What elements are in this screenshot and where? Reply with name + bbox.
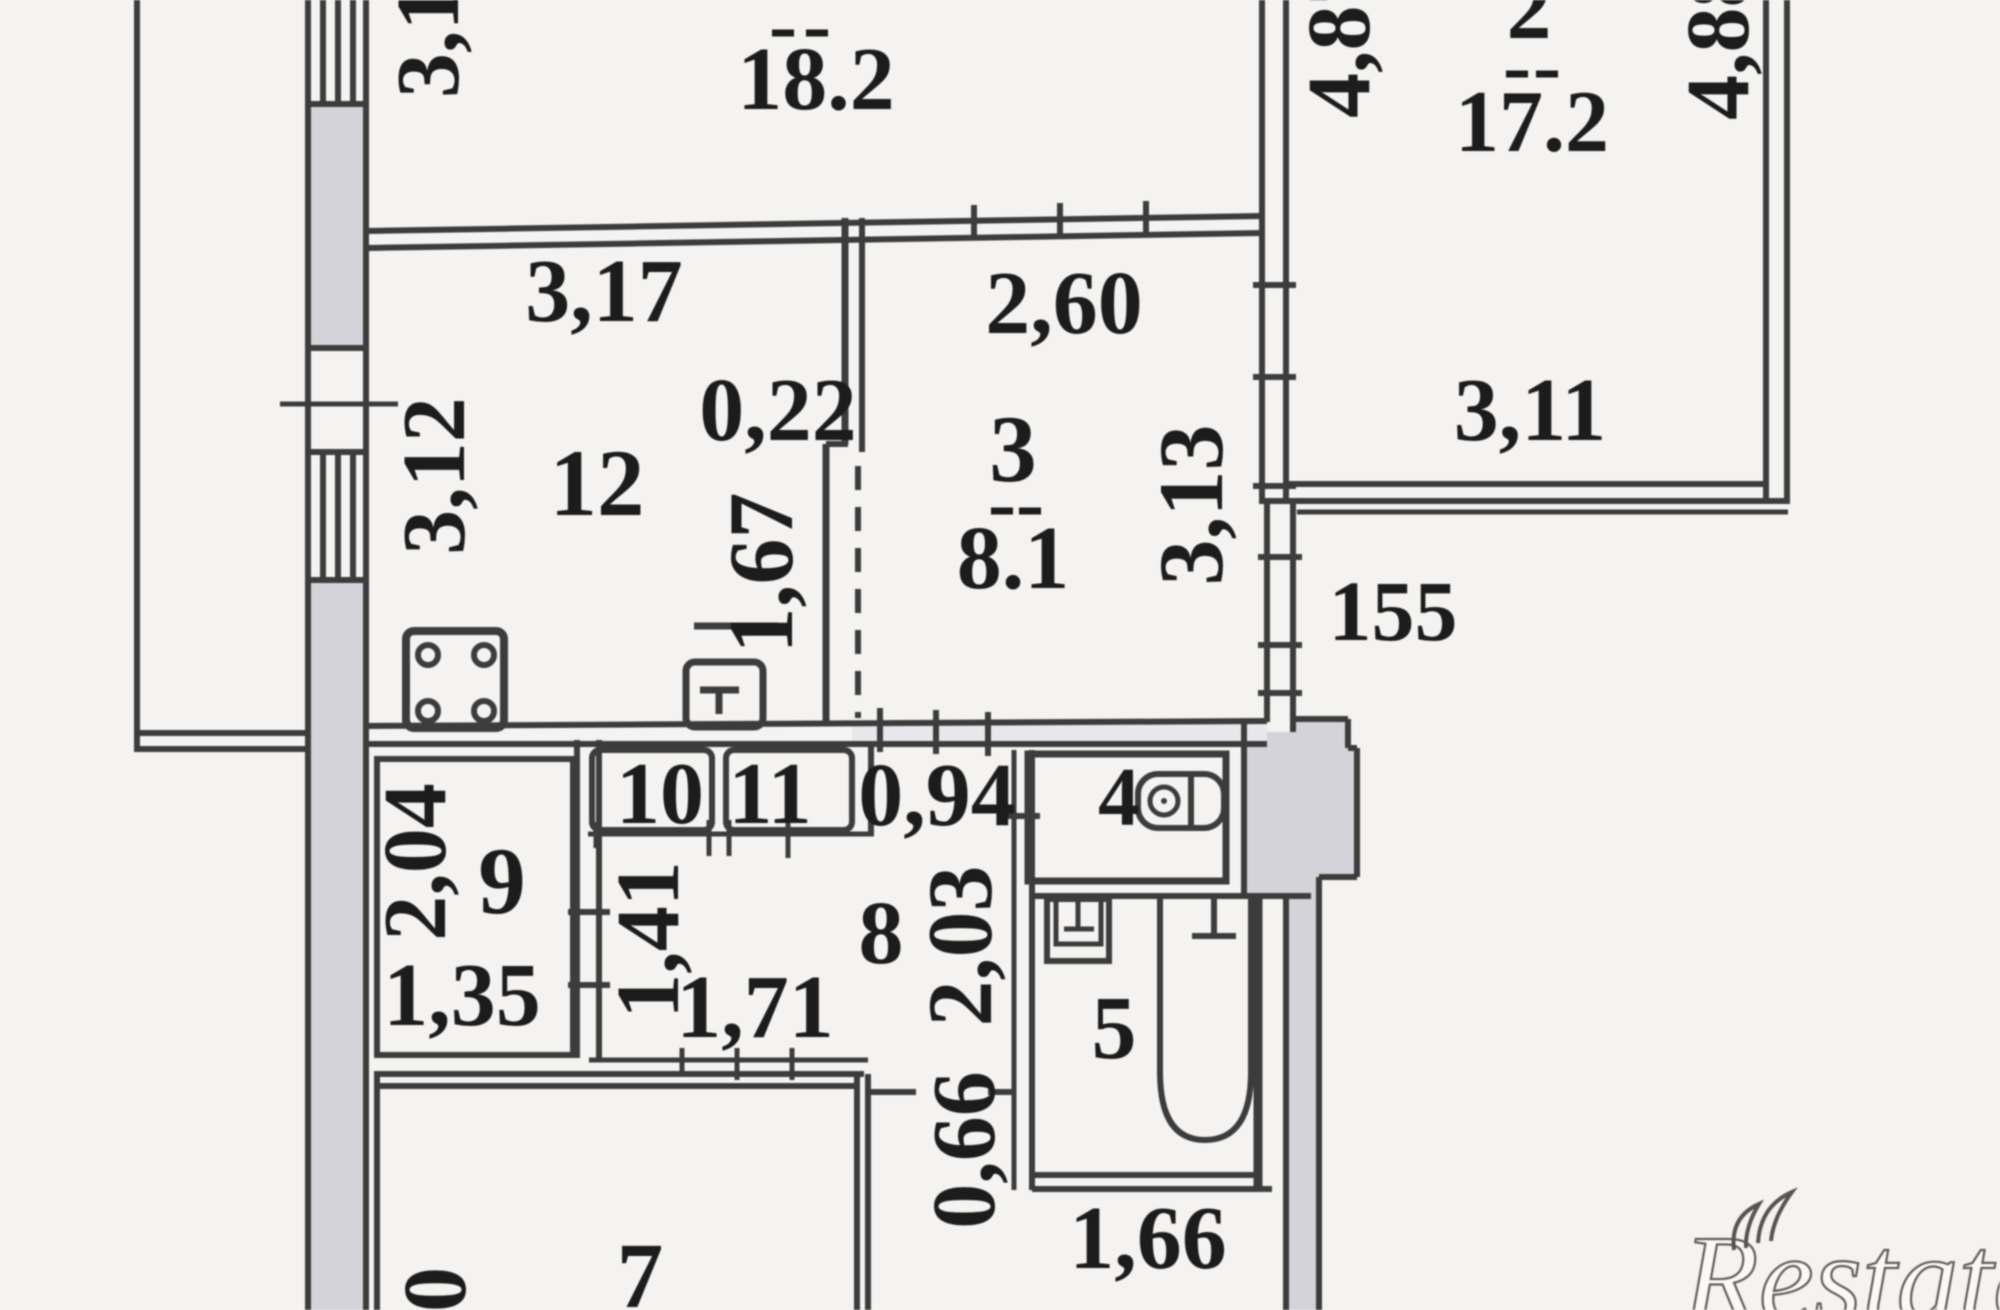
svg-text:3: 3 [989,396,1037,502]
svg-text:8.1: 8.1 [957,509,1070,608]
svg-text:8: 8 [859,884,904,983]
svg-text:4,87: 4,87 [1290,0,1389,118]
svg-text:11: 11 [728,746,811,843]
svg-text:0,94: 0,94 [858,746,1016,845]
svg-text:9: 9 [478,828,526,934]
svg-text:Restate: Restate [1682,1210,2000,1310]
svg-text:5: 5 [1092,979,1137,1078]
svg-text:2,03: 2,03 [909,866,1011,1027]
svg-text:0,22: 0,22 [699,361,857,460]
svg-text:1,71: 1,71 [676,958,834,1057]
svg-text:3,13: 3,13 [1140,425,1242,586]
svg-text:4: 4 [1098,751,1140,844]
svg-text:3,17: 3,17 [525,242,683,341]
svg-text:70: 70 [386,1267,485,1310]
svg-text:2,04: 2,04 [366,783,465,941]
svg-text:4,88: 4,88 [1669,0,1768,120]
svg-text:2: 2 [1507,0,1552,58]
svg-text:3,12: 3,12 [385,397,484,555]
svg-text:2,60: 2,60 [985,254,1143,353]
svg-text:0,66: 0,66 [915,1071,1014,1229]
svg-text:1,66: 1,66 [1069,1189,1227,1288]
svg-text:3,11: 3,11 [1454,361,1607,460]
svg-text:1,35: 1,35 [383,946,541,1045]
svg-text:17.2: 17.2 [1455,74,1609,171]
svg-text:1,67: 1,67 [710,493,812,654]
svg-text:10: 10 [616,746,704,843]
svg-text:7: 7 [617,1225,664,1310]
svg-text:3,18: 3,18 [379,0,478,98]
svg-text:12: 12 [550,430,645,536]
svg-text:155: 155 [1329,563,1458,659]
svg-text:18.2: 18.2 [737,30,895,129]
